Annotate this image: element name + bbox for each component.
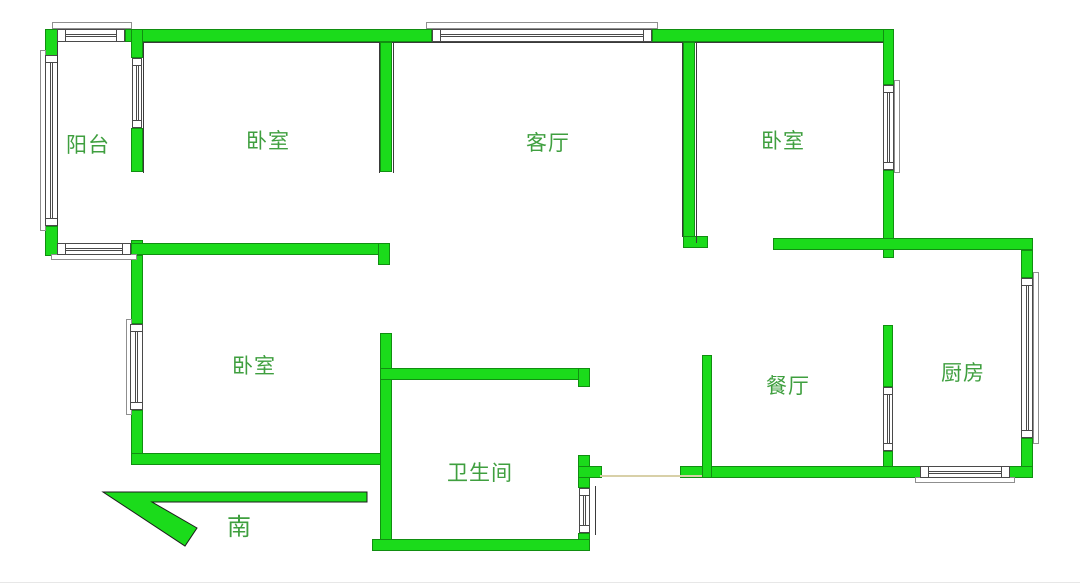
bedroom3-left-window-glazing-line — [135, 325, 136, 409]
bedroom3-left-window-end-tab — [130, 324, 143, 332]
kitchen-bottom-window — [920, 466, 1010, 478]
interior-outline-hairline — [57, 42, 58, 226]
balcony-bottom-window-end-tab — [122, 243, 131, 255]
dining-divider-window-end-tab — [883, 387, 893, 395]
living-top-window-glazing-line — [433, 36, 651, 37]
wall-segment — [131, 255, 143, 324]
room-label-bedroom-middle: 卧室 — [232, 356, 276, 377]
balcony-bottom-window-end-tab — [57, 243, 66, 255]
balcony-bottom-window-glazing-line — [58, 248, 130, 249]
wall-segment — [652, 29, 892, 42]
bedroom-right-window-sill — [894, 80, 900, 173]
balcony-top-window-glazing-line — [58, 34, 124, 35]
interior-outline-hairline — [0, 582, 1080, 583]
kitchen-right-window-glazing-line — [1028, 279, 1029, 437]
bedroom3-left-window — [130, 324, 143, 410]
kitchen-right-window-end-tab — [1021, 278, 1033, 286]
balcony-divider-window-end-tab — [132, 58, 142, 66]
interior-outline-hairline — [682, 42, 683, 237]
bedroom-right-window — [883, 85, 894, 170]
wall-segment — [380, 368, 590, 380]
interior-outline-hairline — [143, 42, 144, 173]
interior-outline-hairline — [392, 42, 683, 43]
wall-segment — [1021, 250, 1033, 278]
living-top-window-end-tab — [643, 29, 652, 42]
south-label: 南 — [227, 516, 252, 540]
wall-segment — [578, 466, 602, 478]
dining-divider-window — [883, 387, 893, 451]
bedroom3-left-window-glazing-line — [137, 325, 138, 409]
interior-outline-hairline — [695, 42, 883, 43]
dining-divider-window-end-tab — [883, 443, 893, 451]
interior-outline-hairline — [379, 42, 380, 173]
living-top-window-sill — [426, 22, 658, 29]
kitchen-bottom-window-glazing-line — [921, 471, 1009, 472]
balcony-top-window-sill — [52, 22, 132, 29]
wall-segment — [131, 453, 381, 465]
kitchen-bottom-window-end-tab — [920, 466, 929, 478]
wall-segment — [883, 325, 893, 387]
living-top-window-end-tab — [432, 29, 441, 42]
balcony-top-window — [57, 29, 125, 42]
balcony-bottom-window-glazing-line — [58, 250, 130, 251]
bedroom-right-window-end-tab — [883, 162, 894, 170]
bedroom-right-window-glazing-line — [887, 86, 888, 169]
corridor-opening-line — [600, 475, 702, 477]
balcony-divider-window — [132, 58, 142, 128]
wall-segment — [378, 243, 390, 265]
balcony-top-window-glazing-line — [58, 36, 124, 37]
kitchen-right-window-glazing-line — [1026, 279, 1027, 437]
bedroom-right-window-end-tab — [883, 85, 894, 93]
bedroom-right-window-glazing-line — [889, 86, 890, 169]
wall-segment — [131, 243, 390, 255]
interior-outline-hairline — [393, 42, 394, 173]
balcony-divider-window-end-tab — [132, 120, 142, 128]
balcony-bottom-window — [57, 243, 131, 255]
balcony-top-window-end-tab — [57, 29, 66, 42]
kitchen-right-window-end-tab — [1021, 430, 1033, 438]
interior-outline-hairline — [143, 42, 380, 43]
living-top-window — [432, 29, 652, 42]
interior-outline-hairline — [696, 42, 697, 243]
wall-segment — [702, 355, 712, 478]
floor-plan-canvas: 阳台卧室客厅卧室卧室餐厅厨房卫生间南 — [0, 0, 1080, 585]
wall-segment — [683, 42, 695, 248]
room-label-bedroom-right: 卧室 — [761, 131, 805, 152]
bathroom-right-window-end-tab — [579, 488, 590, 496]
kitchen-bottom-window-end-tab — [1001, 466, 1010, 478]
balcony-top-window-end-tab — [116, 29, 125, 42]
room-label-kitchen: 厨房 — [941, 363, 985, 384]
balcony-left-window-glazing-line — [50, 56, 51, 225]
room-label-dining-room: 餐厅 — [766, 376, 810, 397]
wall-segment — [372, 539, 590, 551]
living-top-window-glazing-line — [433, 34, 651, 35]
room-label-bathroom: 卫生间 — [447, 463, 513, 484]
room-label-balcony: 阳台 — [66, 135, 110, 156]
wall-segment — [773, 238, 1033, 250]
bedroom3-left-window-end-tab — [130, 402, 143, 410]
wall-segment — [131, 29, 143, 58]
dining-divider-window-glazing-line — [889, 388, 890, 450]
kitchen-right-window-sill — [1033, 272, 1039, 444]
kitchen-right-window — [1021, 278, 1033, 438]
balcony-left-window-glazing-line — [52, 56, 53, 225]
bathroom-right-window — [579, 488, 590, 533]
room-label-bedroom-top: 卧室 — [246, 131, 290, 152]
bathroom-right-window-end-tab — [579, 525, 590, 533]
wall-segment — [883, 29, 894, 85]
wall-segment — [131, 128, 143, 172]
wall-segment — [578, 368, 590, 387]
wall-segment — [125, 29, 432, 42]
wall-segment — [380, 42, 392, 172]
room-label-living-room: 客厅 — [526, 133, 570, 154]
kitchen-bottom-window-glazing-line — [921, 473, 1009, 474]
interior-outline-hairline — [595, 486, 596, 535]
balcony-divider-window-glazing-line — [138, 59, 139, 127]
